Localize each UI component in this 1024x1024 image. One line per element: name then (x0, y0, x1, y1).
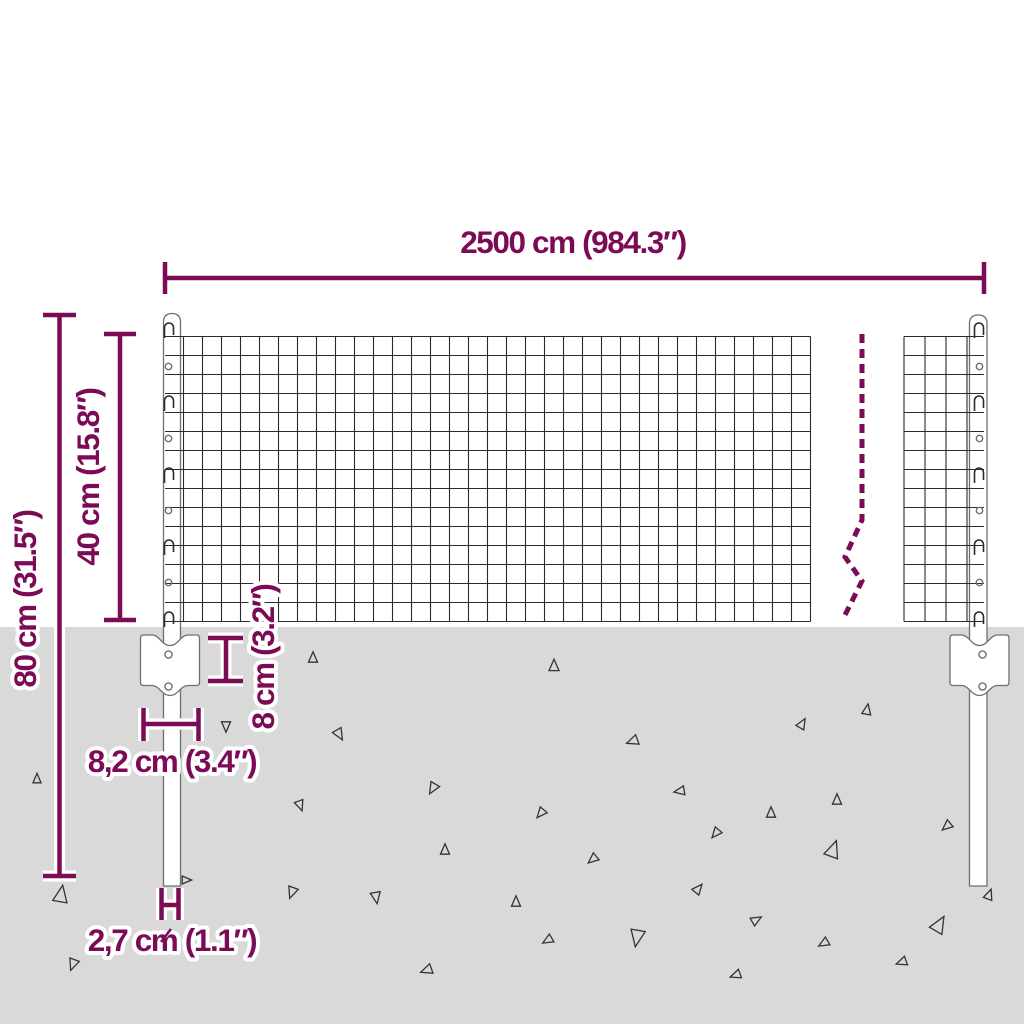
svg-text:8,2 cm (3.4″): 8,2 cm (3.4″) (88, 743, 256, 779)
svg-text:2500 cm (984.3″): 2500 cm (984.3″) (460, 224, 686, 260)
svg-text:8 cm (3.2″): 8 cm (3.2″) (245, 584, 281, 729)
svg-text:2,7 cm (1.1″): 2,7 cm (1.1″) (88, 922, 256, 958)
svg-text:80 cm (31.5″): 80 cm (31.5″) (7, 510, 43, 687)
svg-text:40 cm (15.8″): 40 cm (15.8″) (70, 388, 106, 565)
